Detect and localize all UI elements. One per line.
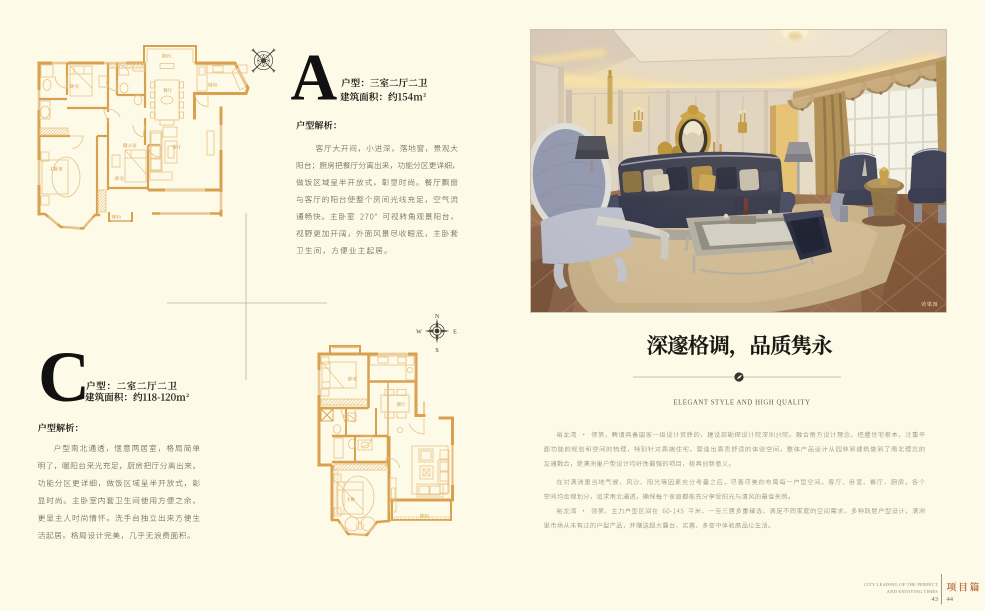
svg-text:A: A bbox=[291, 40, 338, 114]
svg-text:S: S bbox=[435, 348, 438, 354]
svg-text:44: 44 bbox=[947, 596, 954, 603]
svg-text:AND ENJOYING TIMES: AND ENJOYING TIMES bbox=[887, 589, 939, 594]
svg-text:2: 2 bbox=[423, 93, 426, 99]
svg-text:C: C bbox=[38, 337, 90, 417]
svg-text:N: N bbox=[435, 314, 440, 320]
svg-text:W: W bbox=[416, 330, 422, 336]
svg-text:2: 2 bbox=[186, 393, 189, 399]
svg-text:43: 43 bbox=[931, 596, 938, 603]
svg-text:E: E bbox=[453, 330, 457, 336]
svg-text:ELEGANT STYLE AND HIGH QUALITY: ELEGANT STYLE AND HIGH QUALITY bbox=[673, 400, 810, 407]
svg-text:CITY LEADING OF THE PERFECT: CITY LEADING OF THE PERFECT bbox=[864, 582, 938, 587]
